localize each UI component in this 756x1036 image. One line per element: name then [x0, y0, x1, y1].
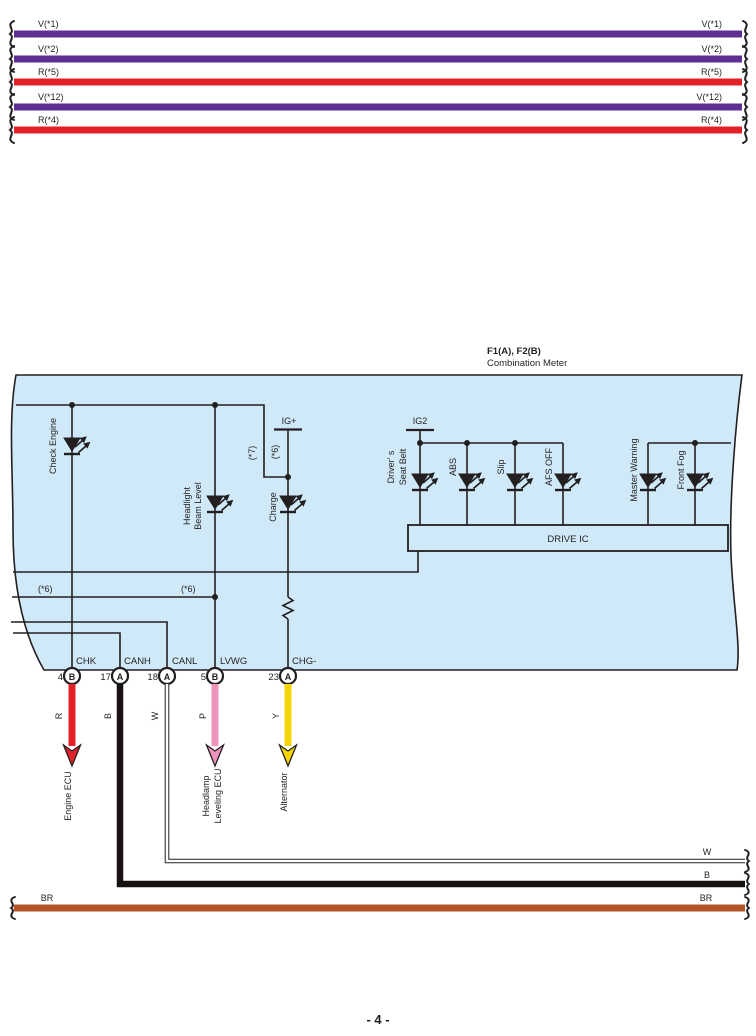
wire-label-left: R(*4)	[38, 115, 59, 125]
pin-connector-letter: A	[164, 672, 171, 682]
wire-break-icon	[745, 897, 749, 919]
page-number: - 4 -	[366, 1012, 389, 1027]
arrow-down-icon	[64, 745, 81, 766]
wire-break-icon	[10, 94, 14, 120]
junction-dot	[212, 594, 218, 600]
ig2-label: IG2	[413, 416, 428, 426]
meter-connector-codes: F1(A), F2(B)	[487, 346, 541, 357]
front-fog-label: Front Fog	[676, 450, 686, 489]
wire-color-code: R	[54, 712, 64, 719]
pin-number: 4	[58, 672, 63, 683]
ig-plus-label: IG+	[282, 416, 297, 426]
pin-name-lvwg: LVWG	[220, 656, 247, 667]
meter-title: Combination Meter	[487, 358, 567, 369]
wire-break-icon	[743, 46, 747, 72]
note-7-label: (*7)	[247, 446, 257, 461]
headlight-beam-label-line1: Headlight	[182, 486, 192, 525]
wire-label-right: R(*4)	[701, 115, 722, 125]
wire-label-left: R(*5)	[38, 67, 59, 77]
wire-color-code: Y	[271, 713, 281, 719]
wire-label-left: V(*1)	[38, 19, 59, 29]
pin-number: 18	[147, 672, 158, 683]
wire-p-headlamp-leveling-ecu: P Headlamp Leveling ECU	[198, 684, 224, 824]
junction-dot	[417, 440, 423, 446]
arrow-down-icon	[207, 745, 224, 766]
note-6-label: (*6)	[181, 584, 196, 594]
wire-break-icon	[743, 94, 747, 120]
junction-dot	[212, 402, 218, 408]
wire-label-right: V(*1)	[701, 19, 722, 29]
wire-y-alternator: Y Alternator	[271, 684, 297, 812]
wire-label-left: V(*12)	[38, 92, 64, 102]
wire-break-icon	[743, 69, 747, 95]
afs-off-label: AFS OFF	[544, 447, 554, 486]
pin-connector-letter: B	[69, 672, 76, 682]
master-warning-label: Master Warning	[629, 438, 639, 501]
pin-connector-letter: B	[212, 672, 219, 682]
check-engine-label: Check Engine	[48, 418, 58, 474]
ground-wire-br: BR BR	[11, 893, 749, 919]
wire-break-icon	[743, 21, 747, 47]
junction-dot	[692, 440, 698, 446]
harness-wire-r5: R(*5) R(*5)	[10, 67, 747, 95]
junction-dot	[464, 440, 470, 446]
combination-meter: F1(A), F2(B) Combination Meter	[11, 346, 742, 670]
headlight-beam-label-line2: Beam Level	[193, 482, 203, 530]
wire-color-code-right: W	[703, 847, 712, 857]
wire-color-code: W	[150, 711, 160, 720]
seat-belt-label-line1: Driver' s	[386, 450, 396, 483]
wire-break-icon	[10, 69, 14, 95]
destination-engine-ecu: Engine ECU	[63, 771, 73, 821]
meter-body	[11, 375, 742, 670]
wire-r-engine-ecu: R Engine ECU	[54, 684, 81, 821]
junction-dot	[512, 440, 518, 446]
charge-label: Charge	[268, 492, 278, 522]
arrow-down-icon	[280, 745, 297, 766]
harness-wire-r4: R(*4) R(*4)	[10, 115, 747, 143]
note-6-label: (*6)	[270, 445, 280, 460]
wire-break-icon	[10, 46, 14, 72]
wire-label-left: V(*2)	[38, 44, 59, 54]
pin-number: 17	[100, 672, 111, 683]
harness-wire-v12: V(*12) V(*12)	[10, 92, 747, 120]
wire-break-icon	[745, 850, 749, 872]
pin-connector-letter: A	[285, 672, 292, 682]
wire-color-code: B	[103, 713, 113, 719]
wire-break-icon	[743, 117, 747, 143]
wiring-diagram-page: V(*1) V(*1) V(*2) V(*2) R(*5) R(*5) V(*1…	[0, 0, 756, 1036]
wire-color-code-right: BR	[700, 893, 713, 903]
outgoing-wires: R Engine ECU B B W W P Headlamp Leveling…	[54, 684, 749, 895]
junction-dot	[69, 402, 75, 408]
wire-break-icon	[10, 21, 14, 47]
abs-label: ABS	[448, 458, 458, 476]
harness-wire-v2: V(*2) V(*2)	[10, 44, 747, 72]
destination-headlamp-line2: Leveling ECU	[213, 768, 223, 823]
pin-name-chg: CHG-	[292, 656, 316, 667]
wire-color-code-left: BR	[41, 893, 54, 903]
seat-belt-label-line2: Seat Belt	[398, 448, 408, 485]
wire-break-icon	[10, 117, 14, 143]
junction-dot	[285, 474, 291, 480]
wire-color-code: P	[198, 713, 208, 719]
wire-label-right: V(*2)	[701, 44, 722, 54]
wire-color-code-right: B	[704, 870, 710, 880]
wire-label-right: R(*5)	[701, 67, 722, 77]
wire-break-icon	[745, 873, 749, 895]
destination-alternator: Alternator	[279, 772, 289, 811]
wire-line	[167, 684, 745, 861]
pin-number: 5	[201, 672, 206, 683]
pin-number: 23	[268, 672, 279, 683]
pin-name-canl: CANL	[172, 656, 197, 667]
pin-connector-letter: A	[117, 672, 124, 682]
wire-w-can: W W	[150, 684, 749, 872]
note-6-label: (*6)	[38, 584, 53, 594]
wire-label-right: V(*12)	[696, 92, 722, 102]
drive-ic-label: DRIVE IC	[547, 534, 588, 545]
destination-headlamp-line1: Headlamp	[201, 775, 211, 816]
slip-label: Slip	[496, 459, 506, 474]
wire-outline	[167, 684, 745, 861]
pin-name-canh: CANH	[124, 656, 151, 667]
top-harness: V(*1) V(*1) V(*2) V(*2) R(*5) R(*5) V(*1…	[10, 19, 747, 143]
pin-name-chk: CHK	[76, 656, 97, 667]
wiring-diagram: V(*1) V(*1) V(*2) V(*2) R(*5) R(*5) V(*1…	[0, 0, 756, 1036]
harness-wire-v1: V(*1) V(*1)	[10, 19, 747, 47]
